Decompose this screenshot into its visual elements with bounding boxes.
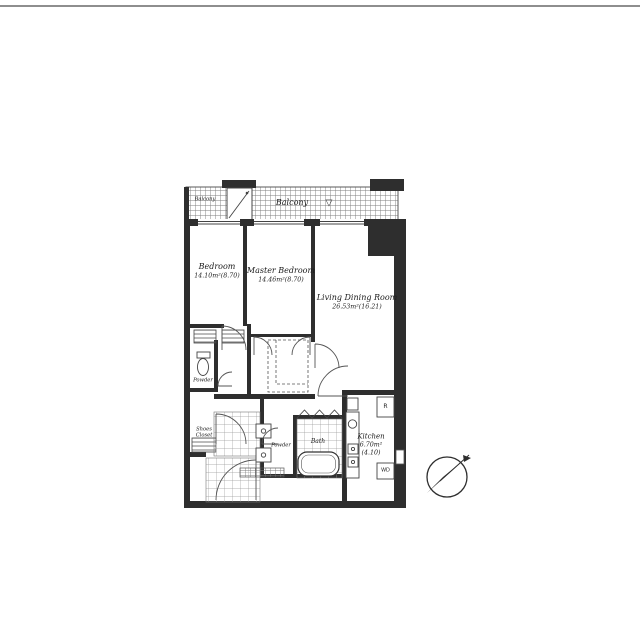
bedroom-label: Bedroom bbox=[199, 263, 236, 271]
bedroom-area: 14.10m²(8.70) bbox=[194, 274, 239, 281]
compass bbox=[427, 455, 471, 497]
toilet bbox=[197, 352, 210, 376]
kitchen-area: 6.70m² bbox=[360, 443, 383, 450]
kitchen-tatami: (4.10) bbox=[362, 451, 381, 458]
bath-label: Bath bbox=[311, 439, 325, 445]
floor-plan-drawing bbox=[0, 0, 640, 630]
meter-box bbox=[396, 450, 404, 464]
washer-dryer-label: WD bbox=[381, 468, 390, 473]
balcony-triangle-mark: ▽ bbox=[326, 199, 333, 208]
floor-plan-page: Balcony Balcony ▽ Bedroom 14.10m²(8.70) … bbox=[0, 0, 640, 630]
living-dining-label: Living Dining Room bbox=[317, 294, 398, 302]
shoes-closet-label-line2: Closet bbox=[196, 433, 213, 438]
balcony-partition bbox=[227, 188, 252, 220]
powder-wc-label: Powder bbox=[193, 378, 213, 383]
balcony-label: Balcony bbox=[276, 199, 308, 207]
windows bbox=[198, 219, 364, 226]
kitchen-label: Kitchen bbox=[357, 433, 384, 440]
powder-vanity-label: Powder bbox=[271, 443, 291, 448]
living-dining-area: 26.53m²(16.21) bbox=[332, 305, 381, 312]
master-bedroom-area: 14.46m²(8.70) bbox=[258, 278, 303, 285]
shoes-closet-shelf bbox=[192, 438, 216, 452]
closet-shelves bbox=[194, 330, 244, 343]
master-bedroom-label: Master Bedroom bbox=[247, 267, 315, 275]
walk-in-closet bbox=[268, 340, 308, 392]
balcony-small-label: Balcony bbox=[195, 197, 216, 202]
bathtub bbox=[298, 452, 339, 476]
refrigerator-label: R bbox=[383, 404, 387, 410]
